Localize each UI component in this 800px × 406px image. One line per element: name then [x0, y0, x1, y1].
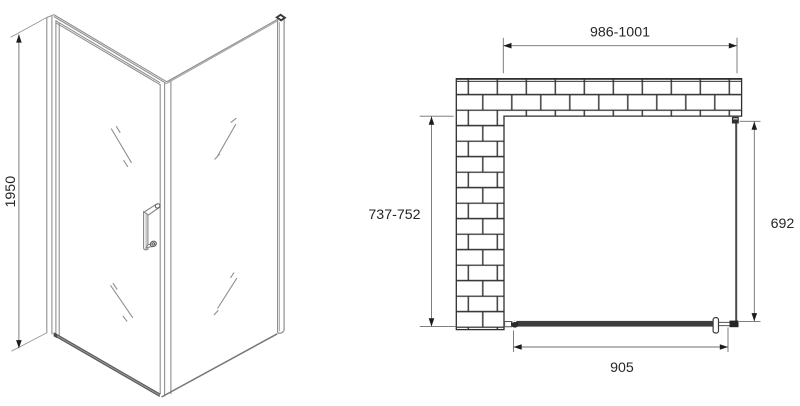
svg-text:737-752: 737-752: [368, 207, 420, 223]
svg-text:1950: 1950: [3, 176, 19, 208]
svg-text:692: 692: [771, 216, 795, 232]
svg-text:905: 905: [610, 360, 634, 376]
svg-text:986-1001: 986-1001: [590, 24, 650, 40]
